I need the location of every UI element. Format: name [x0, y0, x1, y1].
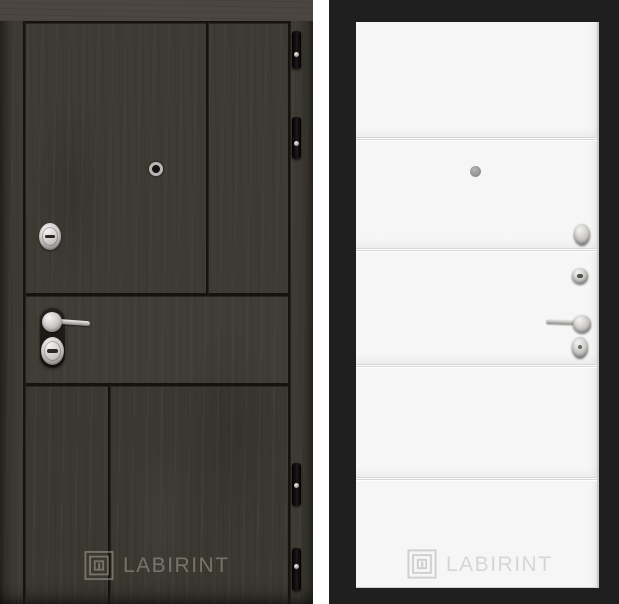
molding-groove: [356, 364, 597, 368]
labirint-maze-icon: [84, 550, 114, 581]
white-door-photo: LABIRINT: [329, 0, 619, 604]
keyhole-slot: [577, 274, 583, 278]
labirint-maze-icon: [407, 548, 437, 580]
hinge-pin: [294, 483, 299, 488]
hinge-icon: [292, 463, 301, 506]
turn-knob: [574, 224, 590, 245]
hinge-pin: [294, 52, 299, 57]
molding-groove: [356, 137, 597, 141]
upper-cylinder-lock: [39, 223, 61, 250]
peephole-icon: [149, 162, 163, 176]
oval-escutcheon: [572, 337, 588, 358]
hinge-pin: [294, 141, 299, 146]
groove-top: [23, 21, 289, 24]
hinge-icon: [292, 548, 301, 591]
groove-middle-lower: [23, 383, 289, 387]
door-product-image: LABIRINT: [0, 0, 619, 604]
keyhole-dot: [578, 345, 582, 349]
dark-door-top-casing: [0, 0, 313, 21]
brand-logo-text: LABIRINT: [123, 555, 230, 576]
handle-rose: [42, 312, 62, 332]
groove-upper-vertical: [206, 21, 209, 295]
lower-cylinder-lock: [41, 337, 64, 365]
molding-groove: [356, 248, 597, 252]
hinge-icon: [292, 31, 301, 69]
brand-logo-text: LABIRINT: [446, 554, 553, 575]
keyhole-slot: [47, 349, 58, 353]
white-door-leaf: LABIRINT: [356, 22, 599, 588]
dark-door-photo: LABIRINT: [0, 0, 313, 604]
round-cylinder-lock: [572, 268, 588, 284]
hinge-icon: [292, 117, 301, 159]
brand-logo: LABIRINT: [407, 548, 553, 580]
groove-middle-upper: [23, 293, 289, 297]
peephole-icon: [470, 166, 481, 177]
keyhole-slot: [45, 235, 55, 238]
molding-groove: [356, 477, 597, 481]
handle-rose: [573, 315, 591, 333]
groove-right-stile: [288, 21, 291, 604]
hinge-pin: [294, 564, 299, 569]
brand-logo: LABIRINT: [84, 550, 230, 581]
groove-left-stile: [23, 21, 26, 604]
